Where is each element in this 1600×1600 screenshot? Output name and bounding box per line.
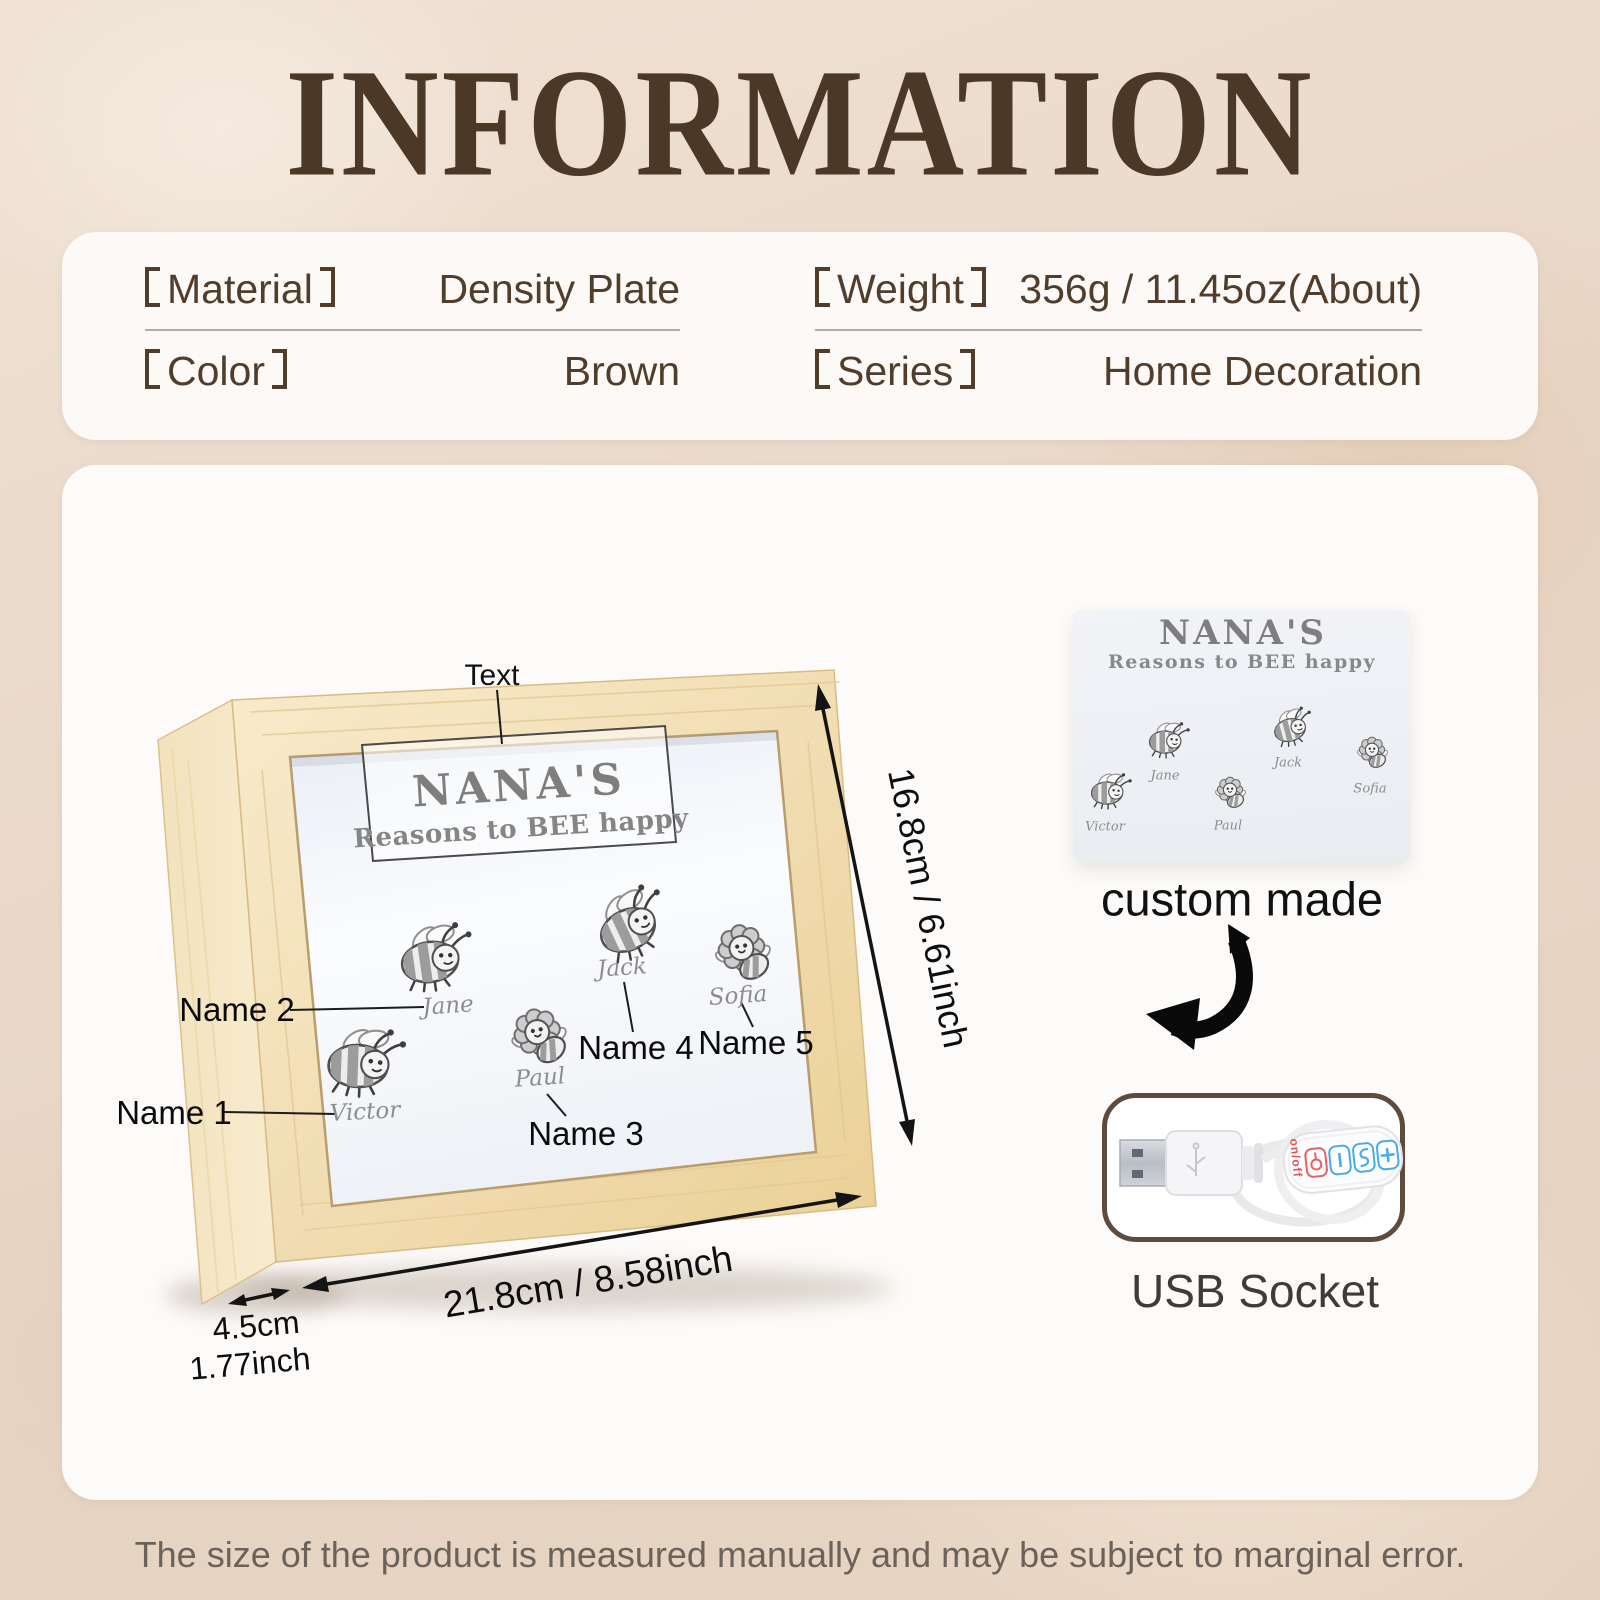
bracket-icon bbox=[320, 267, 335, 307]
divider bbox=[145, 329, 680, 331]
mini-bee-name-paul: Paul bbox=[1214, 819, 1242, 834]
name-5-label: Name 5 bbox=[698, 1024, 814, 1062]
usb-socket-box bbox=[1102, 1093, 1405, 1242]
spec-label-color: Color bbox=[145, 348, 287, 395]
custom-made-caption: custom made bbox=[1101, 872, 1383, 927]
spec-row-material: Material Density Plate bbox=[145, 256, 680, 322]
bracket-icon bbox=[960, 349, 975, 389]
spec-value-series: Home Decoration bbox=[1103, 348, 1422, 395]
usb-socket-caption: USB Socket bbox=[1131, 1264, 1379, 1318]
bracket-icon bbox=[815, 267, 830, 307]
preview-plaque-subtitle: Reasons to BEE happy bbox=[1108, 651, 1376, 673]
bracket-icon bbox=[971, 267, 986, 307]
mini-bee-name-sofia: Sofia bbox=[1353, 782, 1386, 797]
name-1-label: Name 1 bbox=[116, 1094, 232, 1132]
product-information-page: INFORMATION Material Density Plate Color… bbox=[0, 0, 1600, 1600]
spec-label-weight: Weight bbox=[815, 266, 986, 313]
spec-value-color: Brown bbox=[564, 348, 680, 395]
bracket-icon bbox=[815, 349, 830, 389]
spec-label-series: Series bbox=[815, 348, 975, 395]
spec-label-material: Material bbox=[145, 266, 335, 313]
mini-bee-name-victor: Victor bbox=[1085, 820, 1125, 835]
spec-column-left: Material Density Plate Color Brown bbox=[145, 256, 680, 404]
name-3-label: Name 3 bbox=[528, 1115, 644, 1153]
spec-row-series: Series Home Decoration bbox=[815, 338, 1422, 404]
preview-plaque-title: NANA'S bbox=[1159, 613, 1327, 653]
bee-name-victor: Victor bbox=[329, 1097, 401, 1127]
divider bbox=[815, 329, 1422, 331]
bracket-icon bbox=[145, 349, 160, 389]
mini-bee-name-jack: Jack bbox=[1274, 756, 1302, 771]
bracket-icon bbox=[272, 349, 287, 389]
text-pointer-label: Text bbox=[464, 659, 519, 693]
spec-value-material: Density Plate bbox=[438, 266, 680, 313]
spec-value-weight: 356g / 11.45oz(About) bbox=[1019, 266, 1422, 313]
name-2-label: Name 2 bbox=[179, 991, 295, 1029]
spec-card: Material Density Plate Color Brown Weigh… bbox=[62, 232, 1538, 440]
mini-bee-name-jane: Jane bbox=[1150, 769, 1179, 784]
page-title: INFORMATION bbox=[16, 39, 1584, 207]
bracket-icon bbox=[145, 267, 160, 307]
name-4-label: Name 4 bbox=[578, 1029, 694, 1067]
bee-name-sofia: Sofia bbox=[708, 981, 768, 1011]
spec-row-weight: Weight 356g / 11.45oz(About) bbox=[815, 256, 1422, 322]
footer-disclaimer: The size of the product is measured manu… bbox=[0, 1534, 1600, 1576]
spec-column-right: Weight 356g / 11.45oz(About) Series Home… bbox=[815, 256, 1422, 404]
bee-name-paul: Paul bbox=[514, 1063, 566, 1092]
spec-row-color: Color Brown bbox=[145, 338, 680, 404]
bee-name-jack: Jack bbox=[596, 953, 647, 982]
bee-name-jane: Jane bbox=[421, 991, 474, 1021]
